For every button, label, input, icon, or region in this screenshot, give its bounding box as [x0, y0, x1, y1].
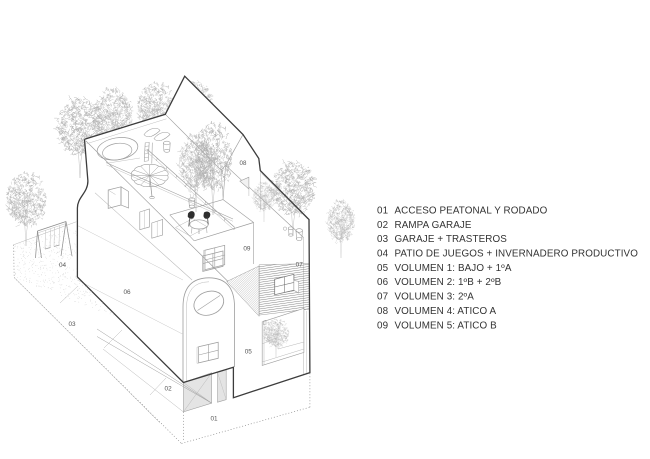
svg-text:09: 09	[243, 246, 251, 253]
svg-text:RAMPA GARAJE: RAMPA GARAJE	[395, 220, 472, 231]
svg-text:VOLUMEN 4: ATICO A: VOLUMEN 4: ATICO A	[395, 306, 497, 317]
svg-text:06: 06	[123, 289, 131, 296]
svg-text:06: 06	[377, 277, 389, 288]
svg-text:VOLUMEN 2: 1ºB + 2ºB: VOLUMEN 2: 1ºB + 2ºB	[395, 277, 502, 288]
svg-text:03: 03	[377, 234, 389, 245]
svg-text:04: 04	[377, 249, 389, 260]
svg-text:VOLUMEN 3: 2ºA: VOLUMEN 3: 2ºA	[395, 292, 475, 303]
svg-text:01: 01	[210, 416, 218, 423]
svg-text:08: 08	[240, 160, 247, 167]
svg-text:04: 04	[59, 262, 67, 269]
svg-text:VOLUMEN 1: BAJO + 1ºA: VOLUMEN 1: BAJO + 1ºA	[395, 263, 512, 274]
svg-text:09: 09	[377, 320, 389, 331]
svg-text:05: 05	[377, 263, 389, 274]
svg-text:01: 01	[377, 206, 388, 217]
svg-text:ACCESO PEATONAL Y RODADO: ACCESO PEATONAL Y RODADO	[395, 206, 548, 217]
svg-text:02: 02	[165, 386, 173, 393]
svg-text:02: 02	[377, 220, 388, 231]
svg-text:VOLUMEN 5: ATICO B: VOLUMEN 5: ATICO B	[395, 320, 498, 331]
svg-text:07: 07	[296, 261, 304, 268]
svg-text:PATIO DE JUEGOS + INVERNADERO: PATIO DE JUEGOS + INVERNADERO PRODUCTIVO	[395, 249, 639, 260]
svg-text:07: 07	[377, 292, 388, 303]
svg-text:GARAJE + TRASTEROS: GARAJE + TRASTEROS	[395, 234, 508, 245]
svg-text:05: 05	[245, 349, 253, 356]
svg-text:08: 08	[377, 306, 389, 317]
svg-text:03: 03	[68, 321, 76, 328]
